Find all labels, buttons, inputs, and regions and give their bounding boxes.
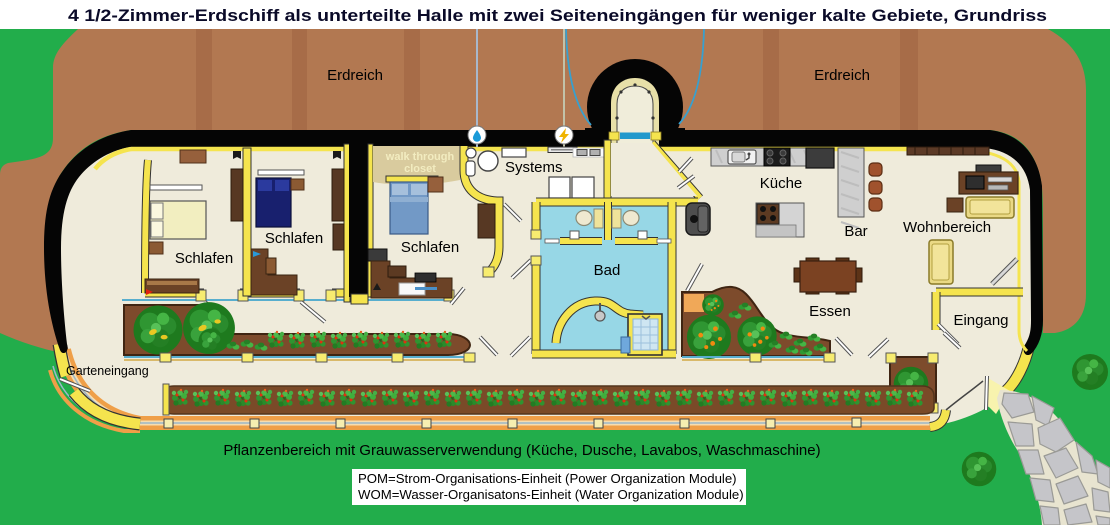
svg-text:Schlafen: Schlafen: [265, 230, 323, 247]
svg-text:Bad: Bad: [594, 262, 621, 279]
svg-text:Systems: Systems: [505, 159, 563, 176]
svg-text:Schlafen: Schlafen: [401, 239, 459, 256]
svg-text:walk through: walk through: [385, 151, 455, 163]
svg-text:4 1/2-Zimmer-Erdschiff als unt: 4 1/2-Zimmer-Erdschiff als unterteilte H…: [68, 6, 1047, 25]
svg-text:Wohnbereich: Wohnbereich: [903, 219, 991, 236]
svg-text:Essen: Essen: [809, 303, 851, 320]
svg-text:Küche: Küche: [760, 175, 803, 192]
svg-text:POM=Strom-Organisations-Einhei: POM=Strom-Organisations-Einheit (Power O…: [358, 471, 737, 486]
svg-text:Eingang: Eingang: [953, 312, 1008, 329]
svg-text:Erdreich: Erdreich: [814, 67, 870, 84]
svg-text:Schlafen: Schlafen: [175, 250, 233, 267]
svg-text:Erdreich: Erdreich: [327, 67, 383, 84]
svg-text:closet: closet: [404, 163, 436, 175]
svg-text:Bar: Bar: [844, 223, 867, 240]
svg-text:Pflanzenbereich mit Grauwasser: Pflanzenbereich mit Grauwasserverwendung…: [223, 442, 820, 459]
svg-text:Garteneingang: Garteneingang: [66, 364, 149, 378]
svg-text:WOM=Wasser-Organisatons-Einhei: WOM=Wasser-Organisatons-Einheit (Water O…: [358, 487, 744, 502]
